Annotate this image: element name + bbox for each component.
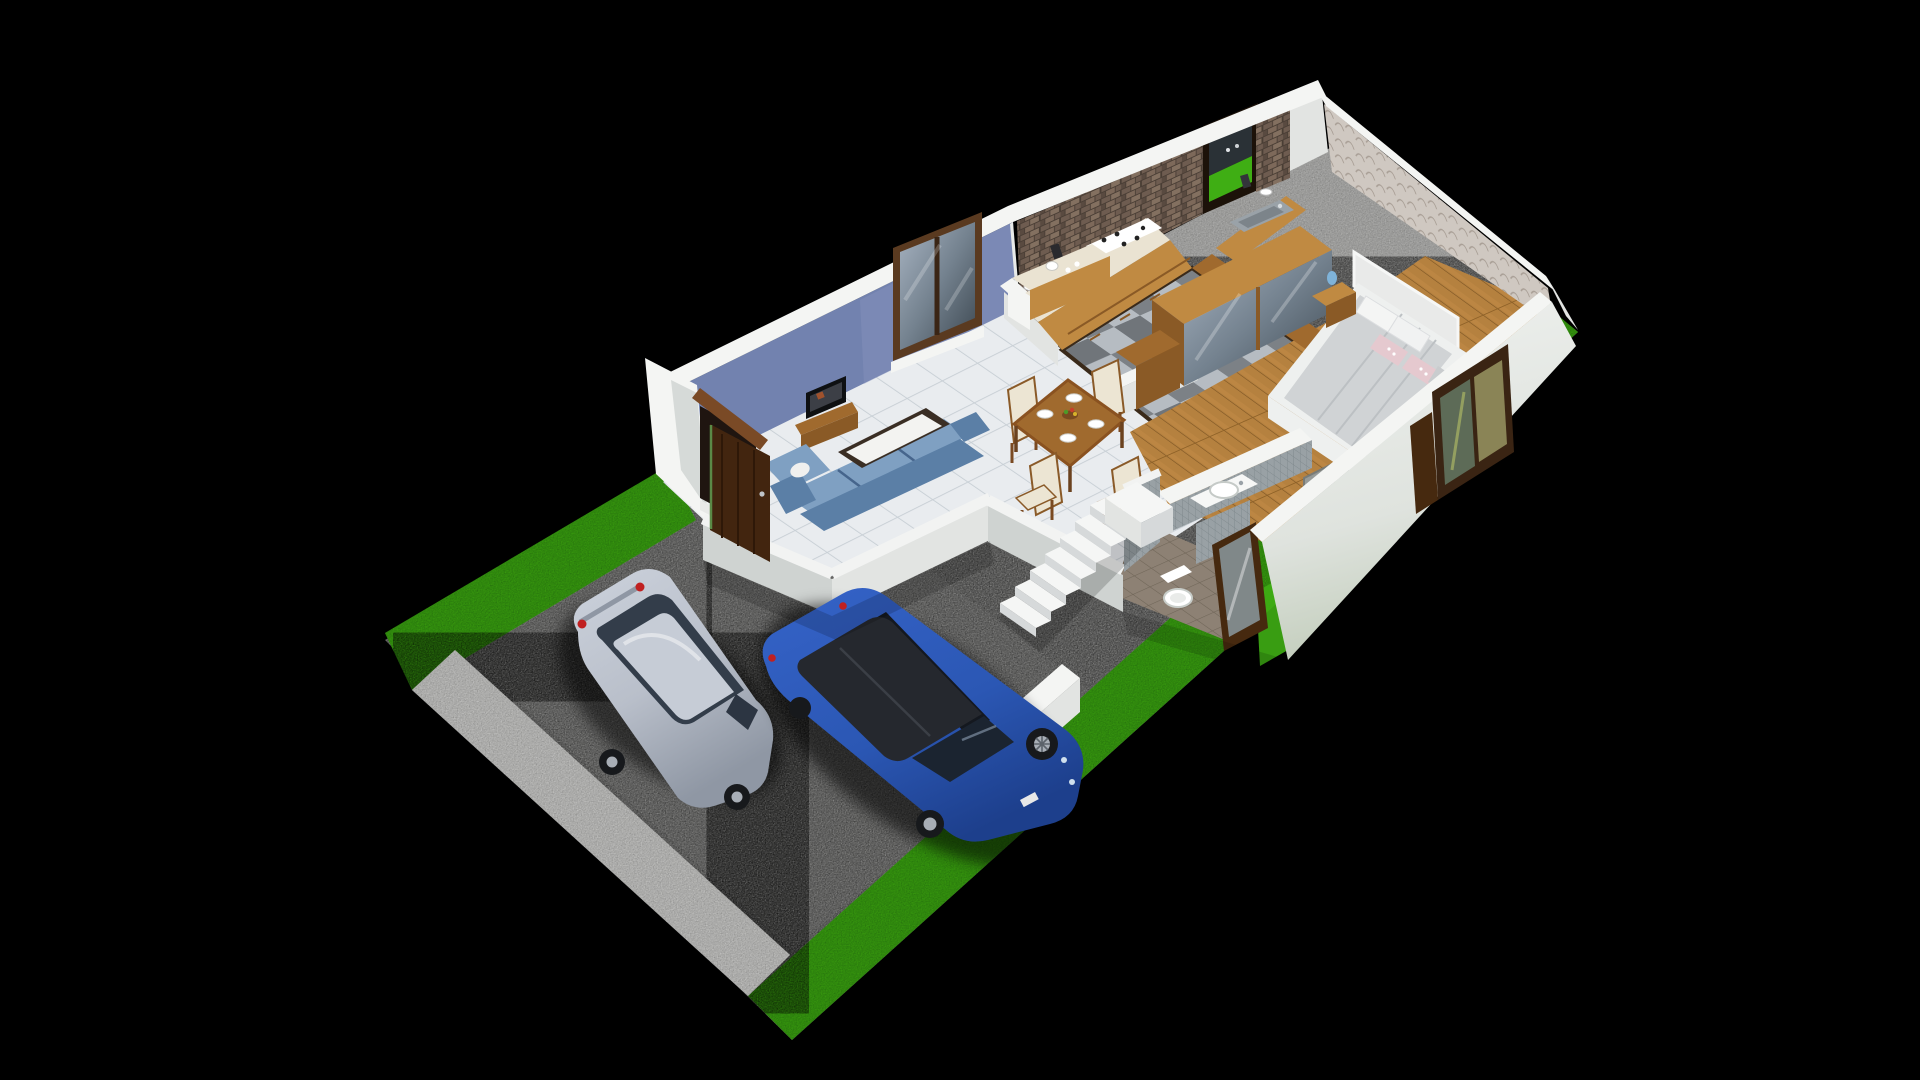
render-stage [0,0,1920,1080]
sink-tap [1278,204,1282,208]
plate-2 [1260,189,1272,195]
table-lamp-left [1327,271,1337,285]
suv-taillight-right [839,602,847,610]
taillight-left [578,620,587,629]
tea-kettle [1046,262,1058,271]
door-handle [759,491,764,496]
toilet-seat [1170,593,1186,603]
bedroom-window-pane-right [1474,360,1507,462]
headlight-2 [1069,779,1075,785]
floorplan-render [0,0,1920,1080]
basin-tap [1239,481,1243,485]
suv-wheel-rear [789,697,811,719]
washbasin [1210,482,1238,498]
taillight-right [636,583,645,592]
tea-cup-2 [1074,261,1079,266]
suv-rim-spokes [1034,736,1050,752]
tea-cup [1065,267,1070,272]
suv-taillight-left [768,654,776,662]
headlight-1 [1061,757,1067,763]
